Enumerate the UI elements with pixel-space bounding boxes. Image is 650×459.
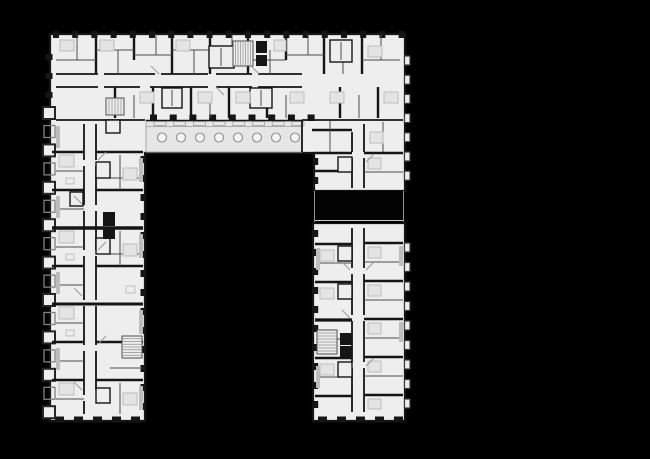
column-icon: [272, 133, 281, 142]
column-icon: [253, 133, 262, 142]
column-icon: [196, 133, 205, 142]
column-icon: [234, 133, 243, 142]
column-icon: [158, 133, 167, 142]
floor-plan-screenshot: [0, 0, 650, 459]
column-icon: [291, 133, 300, 142]
floor-plan-drawing: [0, 0, 650, 459]
expansion-gap: [314, 191, 404, 223]
column-icon: [215, 133, 224, 142]
column-icon: [177, 133, 186, 142]
